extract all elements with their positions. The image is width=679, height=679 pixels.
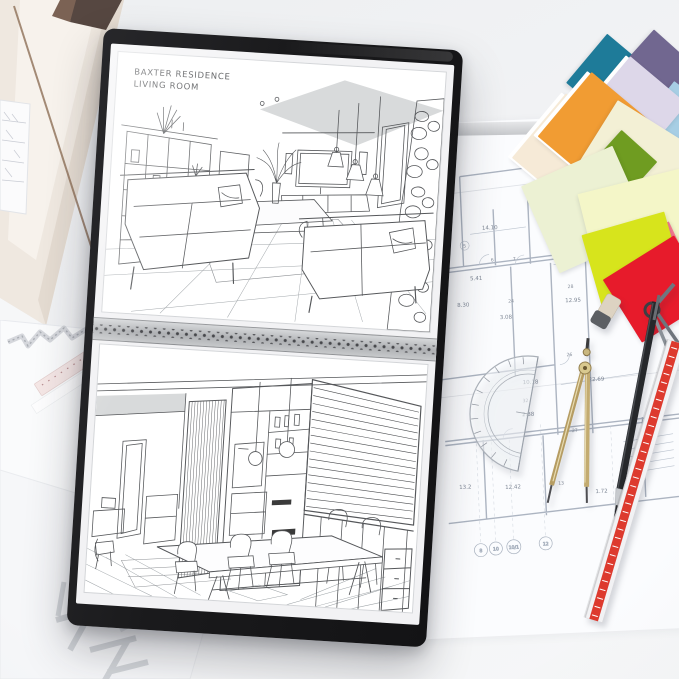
compass-tips [548,483,589,507]
scale-ruler [584,339,679,623]
protractor [461,347,538,471]
designer-desk-scene: 1 2 39.77 88.87 70.98 14.10 25.17 5.41 8… [0,0,679,679]
drafting-tools [0,0,679,679]
eraser [589,292,622,330]
divider-compass [548,336,604,507]
